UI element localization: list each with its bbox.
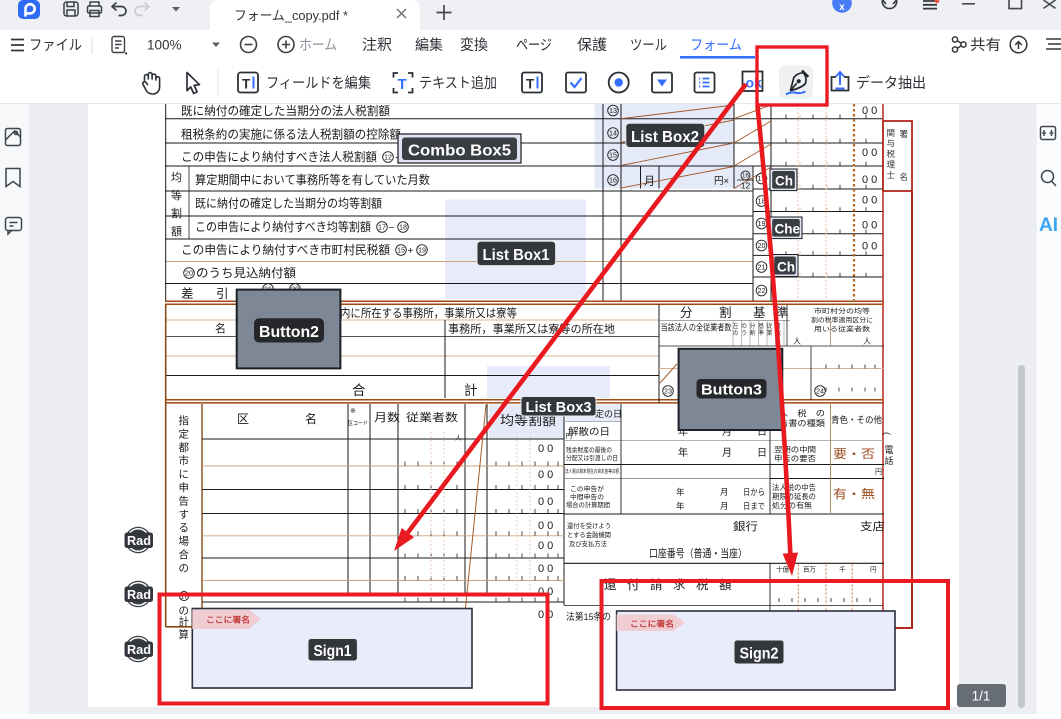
svg-text:17: 17 bbox=[378, 223, 386, 232]
svg-text:22: 22 bbox=[758, 286, 766, 295]
svg-text:年: 年 bbox=[678, 446, 688, 459]
svg-text:割の税率適用区分に: 割の税率適用区分に bbox=[811, 315, 873, 324]
svg-text:15: 15 bbox=[397, 246, 405, 255]
svg-text:名: 名 bbox=[900, 172, 909, 182]
svg-text:月数: 月数 bbox=[374, 411, 400, 424]
svg-text:日: 日 bbox=[757, 448, 767, 459]
svg-text:処分の有無: 処分の有無 bbox=[772, 500, 813, 510]
svg-text:21: 21 bbox=[758, 263, 766, 272]
svg-text:う: う bbox=[741, 330, 747, 337]
svg-text:十億: 十億 bbox=[776, 565, 790, 574]
svg-text:ホーム: ホーム bbox=[299, 38, 337, 54]
svg-text:月: 月 bbox=[720, 487, 729, 497]
svg-text:0 0: 0 0 bbox=[862, 241, 877, 253]
svg-text:割: 割 bbox=[171, 206, 182, 220]
svg-text:20: 20 bbox=[185, 269, 193, 278]
svg-text:市: 市 bbox=[179, 454, 190, 467]
svg-text:合: 合 bbox=[352, 383, 366, 398]
svg-text:支店: 支店 bbox=[860, 519, 885, 533]
svg-text:とする金融機関: とする金融機関 bbox=[567, 530, 611, 539]
svg-text:Sign2: Sign2 bbox=[740, 646, 779, 663]
svg-text:電: 電 bbox=[885, 445, 894, 455]
svg-text:Rad: Rad bbox=[127, 588, 151, 602]
svg-text:AI: AI bbox=[1039, 215, 1058, 236]
svg-text:ここに署名: ここに署名 bbox=[206, 615, 250, 625]
svg-text:13: 13 bbox=[609, 106, 617, 115]
svg-text:年: 年 bbox=[676, 487, 685, 497]
svg-text:1/1: 1/1 bbox=[972, 689, 991, 704]
svg-text:内に所在する事務所，事業所又は寮等: 内に所在する事務所，事業所又は寮等 bbox=[340, 306, 517, 320]
svg-text:士: 士 bbox=[887, 170, 896, 180]
svg-text:分配又は引渡しの日: 分配又は引渡しの日 bbox=[566, 453, 618, 462]
svg-text:円×: 円× bbox=[714, 176, 729, 187]
svg-text:14: 14 bbox=[609, 129, 617, 138]
svg-text:百万: 百万 bbox=[803, 566, 817, 574]
svg-text:この申告により納付すべき均等割額: この申告により納付すべき均等割額 bbox=[195, 219, 371, 234]
svg-text:告書の種類: 告書の種類 bbox=[779, 418, 825, 428]
svg-text:0 0: 0 0 bbox=[862, 195, 877, 207]
svg-text:Combo Box5: Combo Box5 bbox=[408, 143, 511, 160]
svg-text:0 0: 0 0 bbox=[862, 147, 877, 159]
svg-text:Che: Che bbox=[775, 221, 801, 236]
svg-text:基: 基 bbox=[753, 306, 766, 320]
svg-text:16: 16 bbox=[609, 176, 617, 185]
svg-text:ファイル: ファイル bbox=[29, 38, 82, 54]
svg-text:銀行: 銀行 bbox=[733, 519, 758, 533]
svg-text:解散の日: 解散の日 bbox=[568, 426, 610, 438]
svg-text:フォーム: フォーム bbox=[690, 38, 742, 54]
svg-text:Ch: Ch bbox=[775, 173, 793, 188]
svg-text:List Box1: List Box1 bbox=[483, 247, 550, 264]
svg-text:この申告により納付すべき法人税割額: この申告により納付すべき法人税割額 bbox=[181, 149, 377, 164]
svg-text:日まで: 日まで bbox=[743, 501, 765, 511]
svg-text:定: 定 bbox=[179, 427, 190, 440]
svg-text:左: 左 bbox=[733, 322, 739, 330]
svg-text:この申告が: この申告が bbox=[570, 484, 605, 493]
svg-text:15: 15 bbox=[609, 151, 617, 160]
svg-text:既に納付の確定した当期分の均等割額: 既に納付の確定した当期分の均等割額 bbox=[195, 196, 382, 211]
svg-text:0 0: 0 0 bbox=[862, 105, 877, 117]
svg-text:Button2: Button2 bbox=[259, 324, 319, 341]
svg-text:の: の bbox=[179, 562, 190, 574]
svg-text:19: 19 bbox=[418, 246, 426, 255]
svg-text:要・否: 要・否 bbox=[833, 447, 875, 461]
svg-text:均: 均 bbox=[171, 171, 182, 184]
svg-text:告: 告 bbox=[179, 494, 190, 507]
svg-text:ok: ok bbox=[746, 75, 763, 91]
svg-text:理: 理 bbox=[887, 160, 896, 170]
svg-text:署: 署 bbox=[900, 129, 909, 139]
svg-text:円: 円 bbox=[875, 468, 882, 476]
svg-text:(: ( bbox=[882, 432, 892, 435]
svg-text:保護: 保護 bbox=[577, 37, 608, 54]
svg-text:のうち見込納付額: のうち見込納付額 bbox=[196, 266, 296, 280]
svg-text:19: 19 bbox=[758, 219, 766, 228]
svg-text:従業者数: 従業者数 bbox=[406, 411, 458, 424]
svg-text:データ抽出: データ抽出 bbox=[856, 74, 926, 92]
svg-text:0 0: 0 0 bbox=[538, 520, 553, 532]
svg-text:ここに署名: ここに署名 bbox=[630, 619, 674, 629]
svg-text:月: 月 bbox=[722, 447, 732, 459]
svg-text:千: 千 bbox=[839, 565, 846, 574]
svg-text:0 0: 0 0 bbox=[538, 540, 553, 552]
svg-text:Button3: Button3 bbox=[701, 382, 762, 399]
svg-text:都: 都 bbox=[179, 442, 190, 454]
svg-text:準: 準 bbox=[758, 329, 764, 337]
svg-text:テキスト追加: テキスト追加 bbox=[419, 75, 497, 92]
svg-text:月: 月 bbox=[720, 501, 729, 511]
svg-text:T: T bbox=[398, 76, 407, 93]
svg-text:ツール: ツール bbox=[630, 38, 667, 54]
svg-text:市町村分の均等: 市町村分の均等 bbox=[814, 306, 871, 315]
svg-text:場: 場 bbox=[179, 535, 190, 548]
svg-text:額: 額 bbox=[171, 225, 182, 238]
svg-text:与: 与 bbox=[887, 139, 896, 149]
svg-text:16: 16 bbox=[742, 173, 749, 180]
svg-text:注釈: 注釈 bbox=[362, 37, 393, 54]
svg-text:x: x bbox=[839, 2, 845, 13]
svg-text:人: 人 bbox=[455, 434, 462, 442]
svg-text:計: 計 bbox=[179, 615, 190, 628]
svg-text:及び支払方法: 及び支払方法 bbox=[569, 539, 607, 548]
svg-text:区コード: 区コード bbox=[348, 420, 368, 427]
svg-text:0 0: 0 0 bbox=[862, 220, 877, 232]
svg-text:の: の bbox=[741, 323, 747, 330]
svg-text:分: 分 bbox=[750, 322, 756, 330]
svg-text:算: 算 bbox=[179, 628, 190, 641]
svg-text:租税条約の実施に係る法人税割額の控除額: 租税条約の実施に係る法人税割額の控除額 bbox=[181, 127, 401, 142]
svg-text:申: 申 bbox=[179, 481, 190, 494]
svg-text:Rad: Rad bbox=[127, 643, 151, 657]
svg-text:名: 名 bbox=[305, 411, 317, 426]
svg-text:翌期の中間: 翌期の中間 bbox=[774, 444, 816, 454]
svg-text:期限の延長の: 期限の延長の bbox=[772, 491, 816, 501]
svg-text:申告の要否: 申告の要否 bbox=[774, 453, 817, 463]
svg-text:残余財産の最後の: 残余財産の最後の bbox=[566, 445, 612, 454]
svg-text:T: T bbox=[242, 77, 251, 92]
svg-text:指: 指 bbox=[179, 414, 190, 427]
svg-text:フィールドを編集: フィールドを編集 bbox=[266, 75, 371, 92]
svg-text:0 0: 0 0 bbox=[538, 443, 553, 455]
svg-text:算定期間中において事務所等を有していた月数: 算定期間中において事務所等を有していた月数 bbox=[195, 172, 430, 187]
svg-text:ページ: ページ bbox=[516, 38, 552, 54]
svg-text:12: 12 bbox=[384, 153, 392, 162]
svg-text:人: 人 bbox=[863, 337, 871, 346]
svg-text:税: 税 bbox=[887, 149, 896, 159]
svg-text:等: 等 bbox=[171, 188, 182, 202]
svg-text:の: の bbox=[733, 330, 739, 337]
svg-text:計: 計 bbox=[464, 383, 478, 398]
svg-text:定の日: 定の日 bbox=[595, 408, 622, 419]
svg-text:従: 従 bbox=[767, 322, 773, 330]
svg-text:0 0: 0 0 bbox=[538, 496, 553, 508]
svg-text:20: 20 bbox=[758, 241, 766, 250]
svg-text:24: 24 bbox=[816, 387, 824, 396]
svg-text:す: す bbox=[179, 509, 190, 521]
svg-text:共有: 共有 bbox=[970, 37, 1001, 54]
svg-text:る: る bbox=[179, 522, 190, 534]
svg-text:0 0: 0 0 bbox=[538, 469, 553, 481]
svg-text:T: T bbox=[526, 77, 535, 92]
svg-text:当該法人の全従業者数: 当該法人の全従業者数 bbox=[661, 322, 732, 333]
svg-text:差: 差 bbox=[181, 287, 194, 301]
svg-text:23: 23 bbox=[664, 387, 672, 396]
svg-text:Ch: Ch bbox=[777, 259, 795, 274]
svg-text:0 0: 0 0 bbox=[862, 174, 877, 186]
svg-text:年: 年 bbox=[676, 501, 685, 511]
svg-text:日から: 日から bbox=[743, 487, 765, 497]
svg-text:引: 引 bbox=[216, 287, 229, 301]
svg-text:この申告により納付すべき市町村民税額: この申告により納付すべき市町村民税額 bbox=[181, 242, 390, 257]
svg-text:フォーム_copy.pdf *: フォーム_copy.pdf * bbox=[234, 8, 348, 23]
svg-text:12: 12 bbox=[741, 181, 751, 191]
svg-text:18: 18 bbox=[399, 223, 407, 232]
svg-text:−: − bbox=[389, 223, 395, 234]
svg-text:+: + bbox=[408, 246, 414, 257]
svg-text:業: 業 bbox=[767, 329, 773, 337]
svg-text:編集: 編集 bbox=[415, 37, 443, 54]
svg-text:人: 人 bbox=[793, 337, 801, 346]
svg-text:月: 月 bbox=[644, 176, 655, 188]
svg-text:List Box2: List Box2 bbox=[631, 129, 699, 146]
svg-text:名: 名 bbox=[215, 321, 226, 335]
svg-text:有・無: 有・無 bbox=[833, 486, 875, 501]
svg-text:既に納付の確定した当期分の法人税割額: 既に納付の確定した当期分の法人税割額 bbox=[181, 103, 390, 118]
svg-text:Rad: Rad bbox=[127, 534, 151, 548]
svg-text:青色・その他: 青色・その他 bbox=[831, 414, 882, 425]
svg-text:法人税の期末現在の資本金等の額: 法人税の期末現在の資本金等の額 bbox=[565, 468, 619, 475]
svg-text:100%: 100% bbox=[147, 38, 182, 53]
svg-text:0 0: 0 0 bbox=[538, 563, 553, 575]
svg-text:分: 分 bbox=[680, 306, 693, 320]
svg-text:中間申告の: 中間申告の bbox=[570, 492, 604, 501]
svg-text:話: 話 bbox=[885, 455, 894, 466]
svg-text:基: 基 bbox=[758, 322, 764, 330]
svg-text:還付を受けよう: 還付を受けよう bbox=[567, 521, 611, 530]
svg-text:割: 割 bbox=[750, 329, 756, 337]
svg-text:用いる従業者数: 用いる従業者数 bbox=[814, 324, 871, 333]
svg-text:法第15条の: 法第15条の bbox=[566, 611, 611, 623]
svg-text:合: 合 bbox=[179, 548, 190, 561]
svg-text:口座番号（普通・当座）: 口座番号（普通・当座） bbox=[649, 546, 747, 560]
svg-text:List Box3: List Box3 bbox=[526, 400, 592, 416]
svg-text:人 税 の: 人 税 の bbox=[779, 408, 825, 418]
svg-text:※: ※ bbox=[350, 408, 356, 415]
svg-text:円: 円 bbox=[870, 566, 877, 574]
svg-text:関: 関 bbox=[887, 128, 896, 138]
svg-text:場合の計算期間: 場合の計算期間 bbox=[566, 500, 610, 509]
svg-text:法人税の中告: 法人税の中告 bbox=[772, 482, 816, 492]
svg-text:に: に bbox=[179, 469, 190, 481]
svg-text:事務所，事業所又は寮等の所在地: 事務所，事業所又は寮等の所在地 bbox=[448, 322, 615, 336]
svg-text:変換: 変換 bbox=[460, 37, 488, 54]
svg-text:Sign1: Sign1 bbox=[314, 643, 352, 660]
svg-text:割: 割 bbox=[719, 305, 732, 320]
svg-text:区: 区 bbox=[237, 412, 249, 426]
